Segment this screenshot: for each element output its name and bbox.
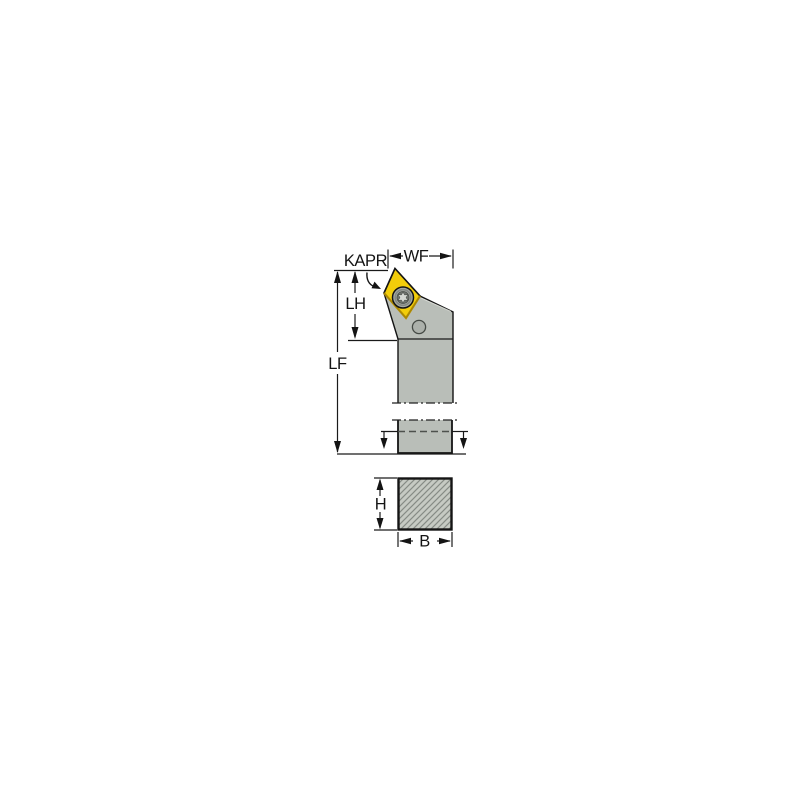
wf-arrow-right [440,253,452,259]
b-label: B [419,533,430,551]
dim-h: H [374,478,397,530]
shank-end-segment [337,420,468,454]
dim-lf: LF [328,271,347,453]
b-arrow-left [399,538,411,544]
clamp-hole [412,320,425,333]
kapr-label: KAPR [344,252,388,270]
down-arrow-right [460,438,467,449]
h-label: H [375,496,387,514]
torx-screw-icon [393,287,414,308]
lf-arrow-down [334,441,341,453]
side-view [384,269,458,404]
cross-section-view: H B [374,478,452,551]
tool-holder-diagram-page: H B WF KAPR [0,0,800,800]
lf-arrow-up [334,271,341,283]
kapr-arrowhead [372,282,382,289]
lh-arrow-up [352,271,359,283]
shank-end-fill [398,420,452,453]
dim-b: B [398,532,452,551]
b-arrow-right [439,538,451,544]
kapr-leader-arc [367,273,374,287]
lh-arrow-down [352,327,359,339]
tool-holder-diagram: H B WF KAPR [0,0,800,800]
down-arrow-left [381,438,388,449]
wf-label: WF [404,248,429,266]
dim-wf: WF [388,248,453,269]
wf-arrow-left [389,253,401,259]
lh-label: LH [345,295,365,313]
h-arrow-down [377,518,384,530]
h-arrow-up [377,479,384,491]
lf-label: LF [328,355,347,373]
section-hatching [399,479,452,530]
